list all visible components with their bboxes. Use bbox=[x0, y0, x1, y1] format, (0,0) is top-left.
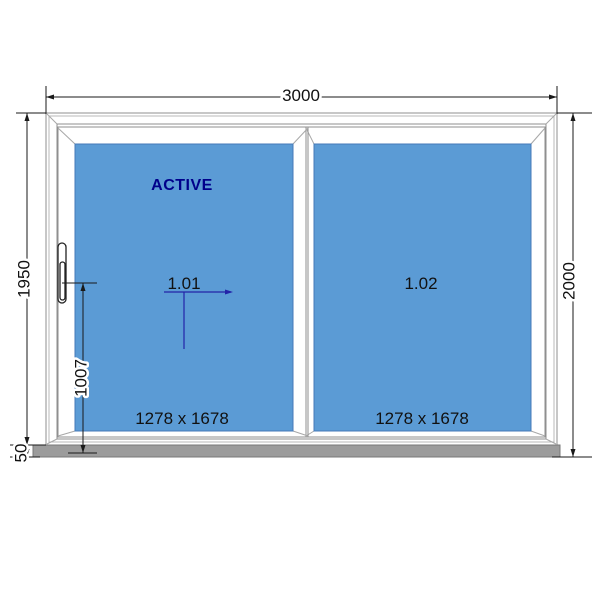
top-width-label: 3000 bbox=[282, 86, 320, 105]
door-handle bbox=[58, 243, 66, 303]
sill bbox=[33, 445, 560, 457]
sill-height-label: 50 bbox=[11, 444, 30, 463]
active-label: ACTIVE bbox=[151, 177, 213, 194]
panel-ref-label-1: 1.01 bbox=[167, 274, 200, 293]
handle-height-label: 1007 bbox=[71, 359, 90, 397]
left-height-label: 1950 bbox=[14, 260, 33, 298]
door-elevation-drawing: 3000 1950 50 2000 1007 ACTIVE 1.01 1.02 … bbox=[0, 0, 600, 600]
panel-size-label-2: 1278 x 1678 bbox=[375, 409, 469, 428]
drawing-canvas: 3000 1950 50 2000 1007 ACTIVE 1.01 1.02 … bbox=[0, 0, 600, 600]
right-height-label: 2000 bbox=[559, 262, 578, 300]
panel-size-label-1: 1278 x 1678 bbox=[135, 409, 229, 428]
panel-ref-label-2: 1.02 bbox=[404, 274, 437, 293]
